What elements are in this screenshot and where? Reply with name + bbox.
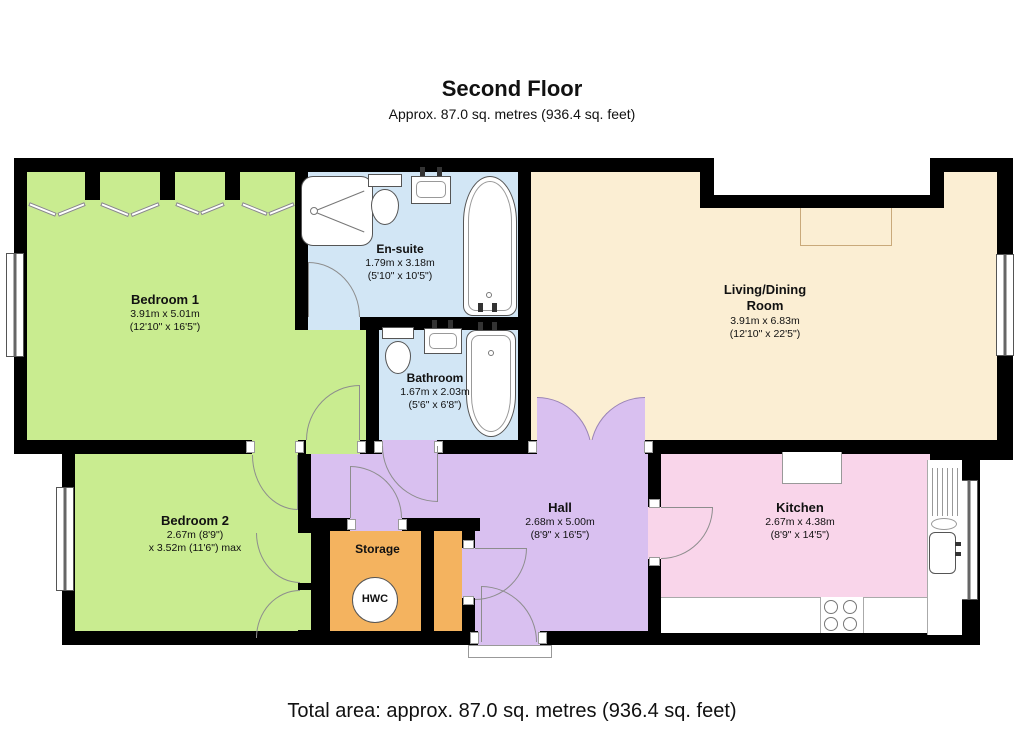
room-dims-imperial: (8'9" x 14'5") bbox=[730, 529, 870, 542]
wardrobe-stub bbox=[160, 172, 175, 200]
window-bedroom2 bbox=[56, 487, 74, 591]
room-dims-imperial: (12'10" x 22'5") bbox=[713, 328, 817, 341]
wardrobe-stub bbox=[85, 172, 100, 200]
hwc-cylinder: HWC bbox=[352, 577, 398, 623]
room-label-kitchen: Kitchen 2.67m x 4.38m (8'9" x 14'5") bbox=[730, 500, 870, 543]
room-name: En-suite bbox=[330, 242, 470, 257]
room-dims-metric: 2.67m (8'9") bbox=[115, 529, 275, 542]
room-name: Bathroom bbox=[365, 371, 505, 386]
door-jamb bbox=[528, 441, 537, 453]
door-opening bbox=[306, 440, 360, 454]
room-dims-imperial: (5'10" x 10'5") bbox=[330, 270, 470, 283]
room-dims-imperial: (5'6" x 6'8") bbox=[365, 399, 505, 412]
door-jamb bbox=[357, 441, 366, 453]
tap-icon bbox=[492, 303, 497, 312]
total-area-text: Total area: approx. 87.0 sq. metres (936… bbox=[0, 700, 1024, 723]
hob-ring-icon bbox=[843, 617, 857, 631]
drainer-tray-icon bbox=[931, 518, 957, 530]
door-jamb bbox=[470, 632, 479, 644]
tap-icon bbox=[437, 167, 442, 176]
tap-icon bbox=[955, 542, 961, 546]
tap-icon bbox=[955, 552, 961, 556]
hob-ring-icon bbox=[843, 600, 857, 614]
room-dims-metric: 3.91m x 6.83m bbox=[713, 315, 817, 328]
room-label-hall: Hall 2.68m x 5.00m (8'9" x 16'5") bbox=[490, 500, 630, 543]
toilet-cistern-icon bbox=[382, 327, 414, 339]
tap-icon bbox=[492, 322, 497, 330]
door-jamb bbox=[649, 499, 660, 508]
wardrobe-stub bbox=[225, 172, 240, 200]
door-jamb bbox=[649, 557, 660, 566]
room-dims-metric: 2.68m x 5.00m bbox=[490, 516, 630, 529]
room-name: Bedroom 1 bbox=[90, 292, 240, 308]
door-jamb bbox=[398, 519, 407, 530]
door-jamb bbox=[463, 596, 474, 605]
kitchen-counter-bottom bbox=[661, 597, 962, 633]
door-jamb bbox=[295, 441, 304, 453]
drainer-icon bbox=[932, 468, 958, 516]
door-opening bbox=[648, 507, 661, 559]
room-dims-metric: 2.67m x 4.38m bbox=[730, 516, 870, 529]
door-jamb bbox=[347, 519, 356, 530]
room-dims-imperial: (12'10" x 16'5") bbox=[90, 321, 240, 334]
window-bedroom1 bbox=[6, 253, 24, 357]
page-title: Second Floor bbox=[0, 76, 1024, 102]
room-dims-metric: 3.91m x 5.01m bbox=[90, 308, 240, 321]
door-opening bbox=[462, 548, 475, 598]
room-label-bedroom2: Bedroom 2 2.67m (8'9") x 3.52m (11'6") m… bbox=[115, 513, 275, 556]
wall-segment bbox=[518, 158, 531, 454]
basin-bowl-icon bbox=[416, 181, 446, 198]
window-living bbox=[996, 254, 1014, 356]
wall-segment bbox=[930, 446, 1013, 460]
room-dims-metric: 1.67m x 2.03m bbox=[365, 386, 505, 399]
room-label-bedroom1: Bedroom 1 3.91m x 5.01m (12'10" x 16'5") bbox=[90, 292, 240, 335]
room-name: Living/Dining Room bbox=[713, 282, 817, 315]
room-name: Hall bbox=[490, 500, 630, 516]
hob-ring-icon bbox=[824, 600, 838, 614]
page-subtitle: Approx. 87.0 sq. metres (936.4 sq. feet) bbox=[0, 106, 1024, 122]
tap-icon bbox=[478, 322, 483, 330]
room-name: Kitchen bbox=[730, 500, 870, 516]
door-jamb bbox=[463, 540, 474, 549]
tap-icon bbox=[420, 167, 425, 176]
room-dims-imperial: x 3.52m (11'6") max bbox=[115, 542, 275, 555]
door-opening bbox=[252, 440, 298, 454]
door-jamb bbox=[246, 441, 255, 453]
room-name: Bedroom 2 bbox=[115, 513, 275, 529]
room-name: Storage bbox=[330, 542, 425, 557]
tap-icon bbox=[432, 320, 437, 328]
tap-icon bbox=[478, 303, 483, 312]
chimney-breast bbox=[800, 208, 892, 246]
wall-segment bbox=[311, 518, 330, 645]
bath-drain-icon bbox=[486, 292, 492, 298]
basin-bowl-icon bbox=[429, 333, 457, 349]
toilet-cistern-icon bbox=[368, 174, 402, 187]
wall-segment bbox=[62, 631, 662, 645]
room-label-bathroom: Bathroom 1.67m x 2.03m (5'6" x 6'8") bbox=[365, 371, 505, 412]
window-kitchen bbox=[960, 480, 978, 600]
tap-icon bbox=[448, 320, 453, 328]
shower-drain-icon bbox=[310, 207, 318, 215]
door-opening bbox=[350, 518, 402, 531]
door-opening bbox=[537, 440, 645, 454]
floorplan-page: Second Floor Approx. 87.0 sq. metres (93… bbox=[0, 0, 1024, 745]
room-dims-metric: 1.79m x 3.18m bbox=[330, 257, 470, 270]
room-dims-imperial: (8'9" x 16'5") bbox=[490, 529, 630, 542]
bath-drain-icon bbox=[488, 350, 494, 356]
room-label-ensuite: En-suite 1.79m x 3.18m (5'10" x 10'5") bbox=[330, 242, 470, 283]
hob-ring-icon bbox=[824, 617, 838, 631]
door-jamb bbox=[538, 632, 547, 644]
kitchen-unit bbox=[782, 452, 842, 484]
door-jamb bbox=[644, 441, 653, 453]
entrance-threshold bbox=[468, 645, 552, 658]
wall-segment bbox=[14, 158, 714, 172]
wall-segment bbox=[700, 195, 944, 208]
kitchen-sink-icon bbox=[929, 532, 956, 574]
door-opening bbox=[308, 317, 360, 330]
room-label-living: Living/Dining Room 3.91m x 6.83m (12'10"… bbox=[713, 282, 817, 341]
room-label-storage: Storage bbox=[330, 542, 425, 557]
